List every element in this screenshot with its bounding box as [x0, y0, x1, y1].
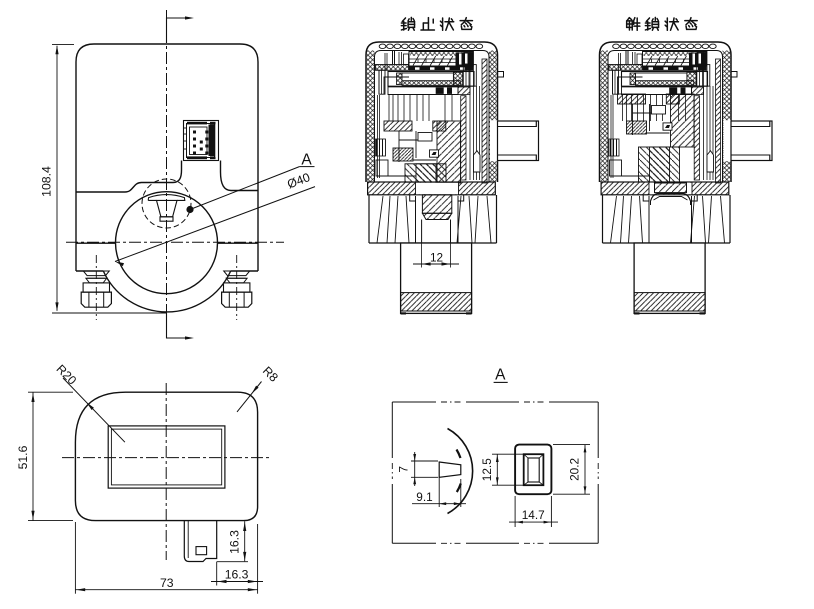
svg-text:16.3: 16.3 — [225, 568, 249, 582]
svg-text:9.1: 9.1 — [416, 490, 432, 504]
svg-text:14.7: 14.7 — [522, 508, 545, 522]
svg-text:12.5: 12.5 — [480, 458, 494, 481]
svg-text:7: 7 — [397, 466, 411, 473]
svg-text:16.3: 16.3 — [227, 530, 241, 554]
svg-text:A: A — [301, 152, 312, 169]
svg-text:A: A — [495, 367, 506, 384]
svg-text:108.4: 108.4 — [40, 166, 54, 197]
svg-text:12: 12 — [430, 251, 443, 265]
svg-text:73: 73 — [160, 576, 174, 590]
svg-text:20.2: 20.2 — [568, 458, 582, 481]
svg-text:51.6: 51.6 — [16, 445, 30, 469]
